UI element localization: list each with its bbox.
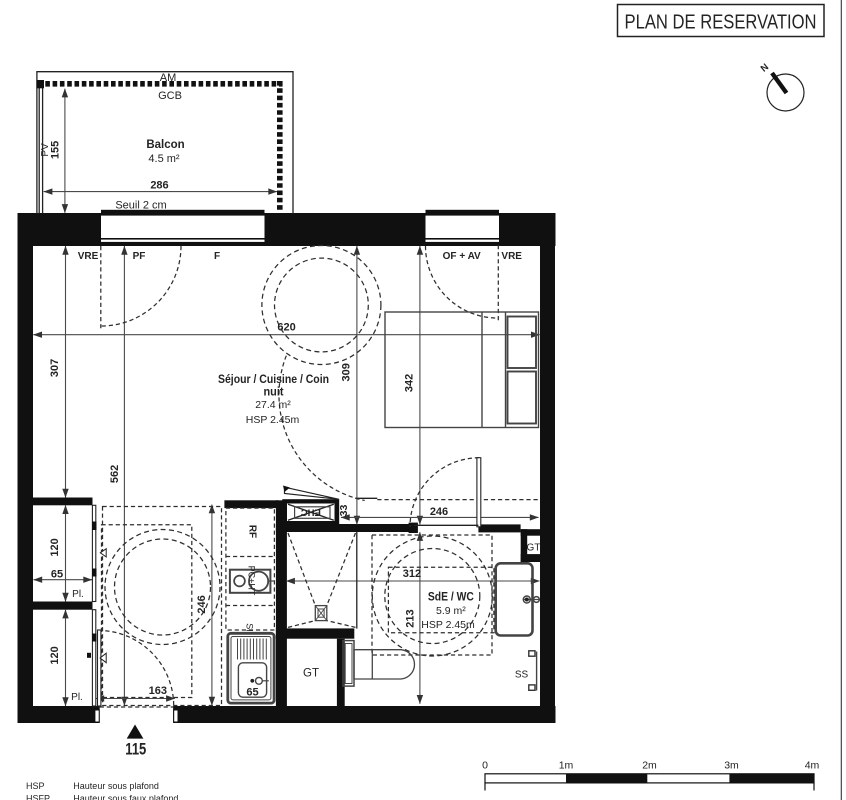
svg-text:286: 286 bbox=[150, 180, 168, 192]
svg-text:342: 342 bbox=[404, 374, 416, 392]
svg-text:GCB: GCB bbox=[158, 90, 182, 102]
svg-text:2m: 2m bbox=[642, 760, 657, 772]
svg-text:SS: SS bbox=[515, 670, 529, 681]
svg-text:246: 246 bbox=[430, 506, 448, 518]
svg-text:65: 65 bbox=[246, 687, 258, 699]
svg-text:Pl.: Pl. bbox=[72, 589, 84, 600]
svg-text:RF: RF bbox=[247, 525, 258, 538]
svg-text:Pl.: Pl. bbox=[71, 692, 83, 703]
svg-text:nuit: nuit bbox=[264, 387, 284, 399]
svg-text:1m: 1m bbox=[559, 760, 574, 772]
svg-text:155: 155 bbox=[49, 141, 61, 159]
svg-text:HSP 2.45m: HSP 2.45m bbox=[421, 619, 475, 631]
svg-text:AM: AM bbox=[160, 72, 177, 84]
svg-text:Hauteur sous plafond: Hauteur sous plafond bbox=[73, 781, 159, 791]
svg-text:HSP: HSP bbox=[26, 781, 45, 791]
svg-text:0: 0 bbox=[482, 760, 488, 772]
svg-text:PC+HT: PC+HT bbox=[247, 566, 257, 596]
svg-text:213: 213 bbox=[405, 609, 417, 627]
svg-text:27.4 m²: 27.4 m² bbox=[255, 399, 291, 411]
svg-text:3m: 3m bbox=[724, 760, 739, 772]
svg-text:F: F bbox=[214, 251, 220, 262]
svg-text:309: 309 bbox=[341, 363, 353, 381]
svg-text:307: 307 bbox=[49, 359, 61, 377]
svg-text:4.5 m²: 4.5 m² bbox=[148, 153, 180, 165]
svg-text:115: 115 bbox=[125, 741, 146, 759]
svg-text:OF + AV: OF + AV bbox=[443, 251, 481, 262]
svg-text:5.9 m²: 5.9 m² bbox=[436, 605, 466, 617]
svg-text:620: 620 bbox=[277, 321, 295, 333]
svg-text:GT: GT bbox=[303, 668, 319, 680]
svg-text:120: 120 bbox=[49, 538, 61, 556]
svg-text:246: 246 bbox=[196, 595, 208, 613]
svg-text:33: 33 bbox=[338, 505, 350, 517]
svg-text:Hauteur sous faux plafond: Hauteur sous faux plafond bbox=[73, 794, 178, 800]
svg-text:VRE: VRE bbox=[78, 251, 99, 262]
svg-text:120: 120 bbox=[49, 646, 61, 664]
svg-text:562: 562 bbox=[109, 465, 121, 483]
svg-text:SI: SI bbox=[245, 623, 255, 632]
svg-text:PF: PF bbox=[133, 251, 146, 262]
svg-text:GT: GT bbox=[527, 543, 541, 554]
svg-text:163: 163 bbox=[149, 685, 167, 697]
svg-text:Balcon: Balcon bbox=[146, 139, 184, 151]
svg-text:4m: 4m bbox=[805, 760, 820, 772]
svg-text:SdE / WC: SdE / WC bbox=[428, 590, 474, 604]
svg-text:65: 65 bbox=[51, 569, 63, 581]
svg-text:HSP 2.45m: HSP 2.45m bbox=[246, 414, 300, 426]
svg-text:Seuil 2 cm: Seuil 2 cm bbox=[115, 200, 166, 212]
svg-text:HSFP: HSFP bbox=[26, 794, 50, 800]
svg-text:312: 312 bbox=[403, 568, 421, 580]
svg-text:EHC: EHC bbox=[301, 508, 321, 519]
svg-text:Séjour / Cuisine / Coin: Séjour / Cuisine / Coin bbox=[218, 374, 329, 386]
svg-text:N: N bbox=[759, 62, 771, 75]
svg-text:PLAN DE RESERVATION: PLAN DE RESERVATION bbox=[625, 11, 817, 34]
svg-text:VRE: VRE bbox=[501, 251, 522, 262]
